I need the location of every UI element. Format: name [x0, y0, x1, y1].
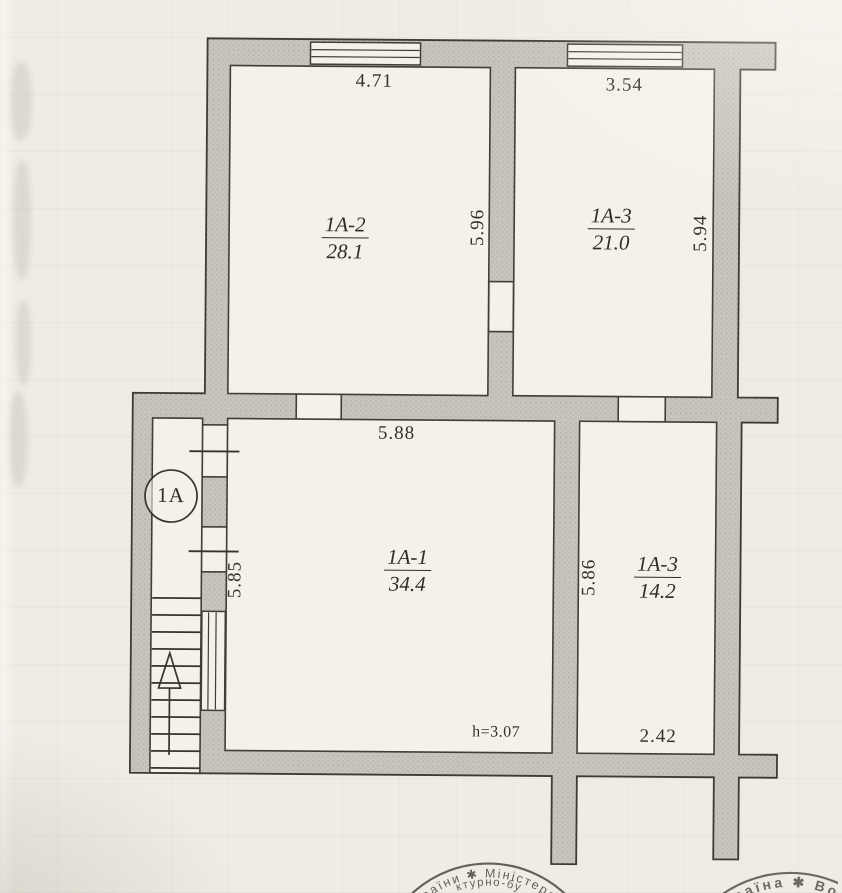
- faint-margin-mark: [13, 160, 31, 280]
- dim-top-left: 4.71: [356, 70, 393, 92]
- dim-top-right: 3.54: [606, 74, 643, 96]
- faint-margin-mark: [10, 62, 32, 140]
- room-name: 1A-3: [588, 204, 635, 229]
- door-opening-middle-right: [619, 398, 665, 421]
- stamp-right: країна ✱ Во: [671, 872, 842, 893]
- room-area: 21.0: [588, 229, 635, 254]
- window-top-right-icon: [567, 44, 682, 67]
- faint-margin-mark: [8, 392, 28, 487]
- room-area: 14.2: [634, 578, 681, 603]
- stamp-right-outer-text: країна ✱ Во: [721, 873, 842, 893]
- room-label-1a3-right: 1A-3 14.2: [634, 553, 681, 604]
- door-opening-top: [490, 282, 512, 332]
- dim-left-lower: 5.85: [224, 561, 246, 598]
- height-note: h=3.07: [472, 723, 520, 741]
- room-name: 1A-2: [322, 213, 369, 238]
- dim-bottom-right: 2.42: [639, 726, 676, 748]
- room-name: 1A-1: [384, 546, 431, 571]
- rooms-layer: [150, 65, 720, 777]
- room-area: 28.1: [321, 238, 368, 263]
- door-opening-middle-left: [297, 395, 341, 418]
- dim-center-lower: 5.86: [578, 559, 600, 596]
- dim-right-upper-right-room: 5.94: [690, 214, 712, 251]
- floor-plan-drawing: раїни ✱ Міністерс ктурно-бу країна ✱ Во …: [0, 0, 842, 893]
- room-label-1a1: 1A-1 34.4: [384, 546, 431, 597]
- floor-plan-svg: раїни ✱ Міністерс ктурно-бу країна ✱ Во: [0, 0, 842, 893]
- scanned-floor-plan-page: раїни ✱ Міністерс ктурно-бу країна ✱ Во …: [0, 0, 842, 893]
- svg-text:країна ✱ Во: країна ✱ Во: [721, 873, 842, 893]
- dim-middle: 5.88: [378, 423, 415, 445]
- room-label-1a3-top: 1A-3 21.0: [588, 204, 635, 255]
- faint-margin-mark: [16, 300, 31, 385]
- door-opening-corridor-lower: [202, 526, 225, 572]
- window-corridor-icon: [201, 611, 225, 710]
- room-label-1a2: 1A-2 28.1: [321, 213, 368, 264]
- stamp-left: раїни ✱ Міністерс ктурно-бу: [375, 863, 601, 893]
- dim-right-upper-left-room: 5.96: [467, 209, 489, 246]
- room-name: 1A-3: [634, 553, 681, 578]
- window-top-left-icon: [310, 42, 420, 65]
- room-area: 34.4: [384, 571, 431, 596]
- unit-circle-label: 1A: [157, 483, 185, 508]
